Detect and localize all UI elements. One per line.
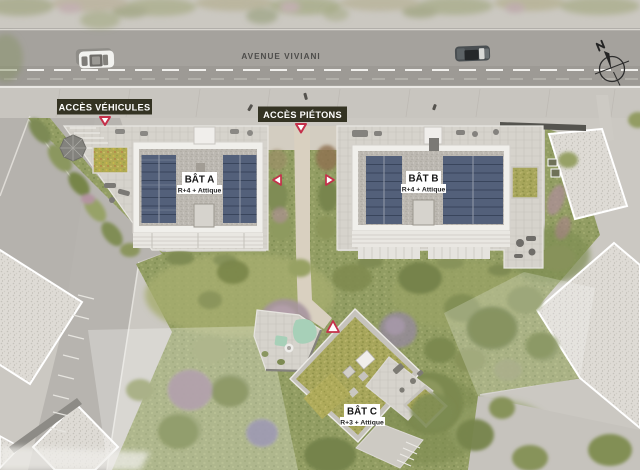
svg-text:R+4 + Attique: R+4 + Attique	[402, 186, 446, 193]
svg-text:R+3 + Attique: R+3 + Attique	[340, 419, 384, 426]
svg-text:R+4 + Attique: R+4 + Attique	[178, 187, 222, 194]
svg-text:BÂT B: BÂT B	[409, 173, 439, 185]
svg-text:ACCÈS PIÉTONS: ACCÈS PIÉTONS	[263, 109, 342, 120]
svg-text:AVENUE VIVIANI: AVENUE VIVIANI	[241, 52, 320, 61]
svg-text:BÂT C: BÂT C	[347, 406, 377, 418]
svg-text:BÂT A: BÂT A	[185, 174, 215, 186]
svg-text:ACCÈS VÉHICULES: ACCÈS VÉHICULES	[59, 102, 151, 113]
